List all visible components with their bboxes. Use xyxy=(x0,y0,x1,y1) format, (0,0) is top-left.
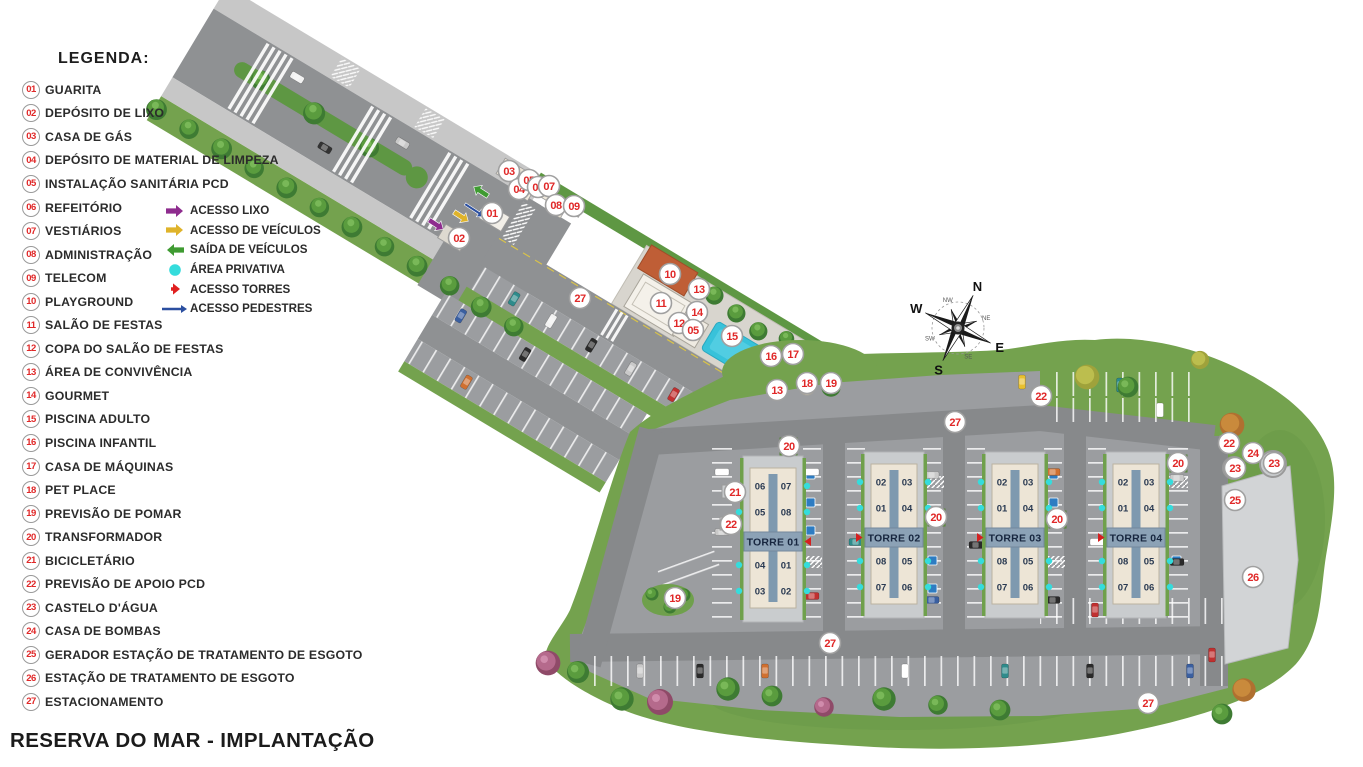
legend-item-16: 16 PISCINA INFANTIL xyxy=(22,431,382,455)
map-marker-19: 19 xyxy=(821,373,842,394)
tower-torre-02: TORRE 020203010408050706 xyxy=(856,452,931,618)
legend-item-18: 18 PET PLACE xyxy=(22,478,382,502)
unit-label: 05 xyxy=(902,556,913,567)
map-marker-number: 05 xyxy=(687,325,699,337)
private-area-dot xyxy=(925,479,931,485)
map-marker-number: 19 xyxy=(825,378,837,390)
map-marker-number: 22 xyxy=(1035,391,1047,403)
legend-item-label: GUARITA xyxy=(45,83,102,97)
legend-item-number: 25 xyxy=(22,646,40,664)
map-marker-number: 09 xyxy=(568,201,580,213)
legend-item-label: PREVISÃO DE APOIO PCD xyxy=(45,577,205,591)
legend-item-number: 22 xyxy=(22,575,40,593)
unit-label: 06 xyxy=(1023,582,1034,593)
acesso-torres-icon xyxy=(160,282,190,296)
private-area-dot xyxy=(857,479,863,485)
tower-torre-04: TORRE 040203010408050706 xyxy=(1098,452,1173,618)
map-marker-23: 23 xyxy=(1264,453,1285,474)
private-area-dot xyxy=(978,505,984,511)
legend-item-number: 12 xyxy=(22,340,40,358)
map-marker-number: 03 xyxy=(503,166,515,178)
legend-item-number: 02 xyxy=(22,104,40,122)
map-marker-number: 23 xyxy=(1268,458,1280,470)
map-marker-27: 27 xyxy=(570,288,591,309)
tower-name-label: TORRE 03 xyxy=(989,532,1042,544)
private-area-dot xyxy=(736,562,742,568)
map-marker-number: 21 xyxy=(729,487,741,499)
legend-item-number: 18 xyxy=(22,481,40,499)
legend-item-label: INSTALAÇÃO SANITÁRIA PCD xyxy=(45,177,229,191)
map-marker-number: 25 xyxy=(1229,495,1241,507)
map-marker-number: 13 xyxy=(771,385,783,397)
private-area-dot xyxy=(1099,558,1105,564)
unit-label: 01 xyxy=(1118,503,1129,514)
legend-item-20: 20 TRANSFORMADOR xyxy=(22,525,382,549)
legend-item-number: 08 xyxy=(22,246,40,264)
map-marker-07: 07 xyxy=(539,176,560,197)
legend-item-number: 13 xyxy=(22,363,40,381)
legend-item-17: 17 CASA DE MÁQUINAS xyxy=(22,455,382,479)
legend-item-22: 22 PREVISÃO DE APOIO PCD xyxy=(22,572,382,596)
private-area-dot xyxy=(978,479,984,485)
map-marker-number: 02 xyxy=(453,233,465,245)
legend-item-13: 13 ÁREA DE CONVIVÊNCIA xyxy=(22,361,382,385)
legend-item-label: DEPÓSITO DE MATERIAL DE LIMPEZA xyxy=(45,153,279,167)
private-area-dot xyxy=(1167,558,1173,564)
legend-item-number: 19 xyxy=(22,505,40,523)
legend-item-label: PISCINA ADULTO xyxy=(45,412,150,426)
map-marker-number: 22 xyxy=(725,519,737,531)
access-item-label: ACESSO LIXO xyxy=(190,204,269,217)
legend-item-label: PREVISÃO DE POMAR xyxy=(45,507,182,521)
private-area-dot xyxy=(804,588,810,594)
unit-label: 02 xyxy=(1118,477,1129,488)
legend-item-number: 11 xyxy=(22,316,40,334)
map-marker-22: 22 xyxy=(1031,386,1052,407)
unit-label: 04 xyxy=(1023,503,1034,514)
unit-label: 03 xyxy=(902,477,913,488)
private-area-dot xyxy=(1167,505,1173,511)
legend-item-number: 06 xyxy=(22,199,40,217)
unit-label: 01 xyxy=(781,560,792,571)
map-marker-number: 15 xyxy=(726,331,738,343)
map-marker-15: 15 xyxy=(722,326,743,347)
legend-item-01: 01 GUARITA xyxy=(22,78,382,102)
map-marker-number: 01 xyxy=(486,208,498,220)
legend-item-23: 23 CASTELO D'ÁGUA xyxy=(22,596,382,620)
compass-label-NW: NW xyxy=(943,298,953,304)
legend-item-12: 12 COPA DO SALÃO DE FESTAS xyxy=(22,337,382,361)
unit-label: 08 xyxy=(1118,556,1129,567)
area-privativa-icon xyxy=(160,263,190,277)
unit-label: 05 xyxy=(1144,556,1155,567)
map-marker-20: 20 xyxy=(926,507,947,528)
map-marker-27: 27 xyxy=(945,412,966,433)
unit-label: 05 xyxy=(1023,556,1034,567)
private-area-dot xyxy=(857,558,863,564)
tower-name-label: TORRE 01 xyxy=(747,536,800,548)
saida-veiculos-icon xyxy=(160,243,190,257)
access-item-acesso-lixo: ACESSO LIXO xyxy=(160,201,321,221)
access-item-label: ACESSO DE VEÍCULOS xyxy=(190,224,321,237)
map-marker-number: 11 xyxy=(656,298,667,310)
compass-label-SW: SW xyxy=(925,336,935,342)
legend-item-number: 09 xyxy=(22,269,40,287)
legend-item-number: 20 xyxy=(22,528,40,546)
private-area-dot xyxy=(1099,479,1105,485)
map-marker-number: 07 xyxy=(543,181,555,193)
compass-label-E: E xyxy=(995,340,1004,355)
unit-label: 04 xyxy=(1144,503,1155,514)
map-marker-number: 20 xyxy=(1051,514,1063,526)
legend-item-21: 21 BICICLETÁRIO xyxy=(22,549,382,573)
legend-item-label: BICICLETÁRIO xyxy=(45,554,135,568)
unit-label: 05 xyxy=(755,507,766,518)
private-area-dot xyxy=(925,558,931,564)
legend-item-14: 14 GOURMET xyxy=(22,384,382,408)
map-marker-19: 19 xyxy=(665,588,686,609)
legend-item-label: CASA DE GÁS xyxy=(45,130,132,144)
private-area-dot xyxy=(736,588,742,594)
legend-item-05: 05 INSTALAÇÃO SANITÁRIA PCD xyxy=(22,172,382,196)
map-marker-20: 20 xyxy=(1168,453,1189,474)
legend-item-number: 05 xyxy=(22,175,40,193)
legend-item-label: PLAYGROUND xyxy=(45,295,133,309)
unit-label: 04 xyxy=(755,560,766,571)
compass-label-NE: NE xyxy=(982,316,990,322)
map-marker-number: 17 xyxy=(787,349,799,361)
map-marker-20: 20 xyxy=(779,436,800,457)
unit-label: 08 xyxy=(781,507,792,518)
map-marker-17: 17 xyxy=(783,344,804,365)
map-marker-number: 16 xyxy=(765,351,777,363)
private-area-dot xyxy=(1099,505,1105,511)
tower-torre-01: TORRE 010607050804010302 xyxy=(736,456,811,622)
private-area-dot xyxy=(978,558,984,564)
legend-item-26: 26 ESTAÇÃO DE TRATAMENTO DE ESGOTO xyxy=(22,667,382,691)
legend-item-number: 03 xyxy=(22,128,40,146)
private-area-dot xyxy=(804,509,810,515)
unit-label: 03 xyxy=(1023,477,1034,488)
access-item-acesso-torres: ACESSO TORRES xyxy=(160,279,321,299)
map-marker-number: 22 xyxy=(1223,438,1235,450)
legend-item-label: ESTAÇÃO DE TRATAMENTO DE ESGOTO xyxy=(45,671,295,685)
map-marker-09: 09 xyxy=(564,196,585,217)
unit-label: 03 xyxy=(755,586,766,597)
map-marker-27: 27 xyxy=(1138,693,1159,714)
tower-torre-03: TORRE 030203010408050706 xyxy=(977,452,1052,618)
legend-item-number: 15 xyxy=(22,410,40,428)
tower-name-label: TORRE 02 xyxy=(868,532,921,544)
legend-item-number: 04 xyxy=(22,151,40,169)
legend-item-02: 02 DEPÓSITO DE LIXO xyxy=(22,102,382,126)
access-item-acesso-pedestres: ACESSO PEDESTRES xyxy=(160,299,321,319)
legend-item-number: 01 xyxy=(22,81,40,99)
private-area-dot xyxy=(1046,479,1052,485)
legend-item-label: REFEITÓRIO xyxy=(45,201,122,215)
private-area-dot xyxy=(1099,584,1105,590)
access-item-label: ÁREA PRIVATIVA xyxy=(190,263,285,276)
access-item-label: ACESSO TORRES xyxy=(190,283,290,296)
acesso-lixo-icon xyxy=(160,204,190,218)
legend-item-number: 21 xyxy=(22,552,40,570)
legend-item-27: 27 ESTACIONAMENTO xyxy=(22,690,382,714)
acesso-pedestres-icon xyxy=(160,302,190,316)
unit-label: 07 xyxy=(997,582,1008,593)
map-marker-21: 21 xyxy=(725,482,746,503)
map-marker-05: 05 xyxy=(683,320,704,341)
unit-label: 06 xyxy=(902,582,913,593)
access-item-area-privativa: ÁREA PRIVATIVA xyxy=(160,260,321,280)
legend-item-number: 17 xyxy=(22,458,40,476)
map-marker-number: 23 xyxy=(1229,463,1241,475)
map-marker-number: 20 xyxy=(783,441,795,453)
compass-label-W: W xyxy=(910,301,923,316)
unit-label: 06 xyxy=(755,481,766,492)
map-marker-number: 27 xyxy=(574,293,586,305)
map-marker-number: 18 xyxy=(801,378,813,390)
unit-label: 04 xyxy=(902,503,913,514)
legend-item-label: CASTELO D'ÁGUA xyxy=(45,601,158,615)
private-area-dot xyxy=(925,584,931,590)
map-marker-24: 24 xyxy=(1243,443,1264,464)
legend-item-label: COPA DO SALÃO DE FESTAS xyxy=(45,342,224,356)
map-marker-13: 13 xyxy=(689,279,710,300)
private-area-dot xyxy=(1167,584,1173,590)
site-plan-page: TORRE 010607050804010302TORRE 0202030104… xyxy=(0,0,1363,767)
unit-label: 01 xyxy=(997,503,1008,514)
legend-panel: LEGENDA: 01 GUARITA 02 DEPÓSITO DE LIXO … xyxy=(22,50,382,714)
legend-item-25: 25 GERADOR ESTAÇÃO DE TRATAMENTO DE ESGO… xyxy=(22,643,382,667)
legend-item-label: GERADOR ESTAÇÃO DE TRATAMENTO DE ESGOTO xyxy=(45,648,363,662)
map-marker-22: 22 xyxy=(1219,433,1240,454)
private-area-dot xyxy=(804,483,810,489)
legend-item-number: 07 xyxy=(22,222,40,240)
compass-label-N: N xyxy=(973,279,982,294)
unit-label: 06 xyxy=(1144,582,1155,593)
legend-list: 01 GUARITA 02 DEPÓSITO DE LIXO 03 CASA D… xyxy=(22,78,382,714)
private-area-dot xyxy=(857,584,863,590)
map-marker-01: 01 xyxy=(482,203,503,224)
legend-item-number: 26 xyxy=(22,669,40,687)
legend-item-label: ADMINISTRAÇÃO xyxy=(45,248,152,262)
map-marker-25: 25 xyxy=(1225,490,1246,511)
legend-item-label: CASA DE MÁQUINAS xyxy=(45,460,173,474)
map-marker-13: 13 xyxy=(767,380,788,401)
map-marker-number: 26 xyxy=(1247,572,1259,584)
legend-item-label: TRANSFORMADOR xyxy=(45,530,162,544)
map-marker-number: 27 xyxy=(949,417,961,429)
acesso-veiculos-icon xyxy=(160,223,190,237)
map-marker-number: 20 xyxy=(1172,458,1184,470)
map-marker-number: 19 xyxy=(669,593,681,605)
map-marker-number: 08 xyxy=(550,200,562,212)
private-area-dot xyxy=(857,505,863,511)
legend-item-number: 24 xyxy=(22,622,40,640)
access-item-label: SAÍDA DE VEÍCULOS xyxy=(190,243,307,256)
map-marker-number: 10 xyxy=(664,269,676,281)
map-marker-22: 22 xyxy=(721,514,742,535)
legend-item-label: SALÃO DE FESTAS xyxy=(45,318,163,332)
map-marker-number: 27 xyxy=(1142,698,1154,710)
map-marker-27: 27 xyxy=(820,633,841,654)
private-area-dot xyxy=(1167,479,1173,485)
access-legend: ACESSO LIXOACESSO DE VEÍCULOSSAÍDA DE VE… xyxy=(160,201,321,319)
legend-item-03: 03 CASA DE GÁS xyxy=(22,125,382,149)
legend-item-label: GOURMET xyxy=(45,389,109,403)
unit-label: 02 xyxy=(997,477,1008,488)
legend-heading: LEGENDA: xyxy=(58,50,382,68)
compass-label-SE: SE xyxy=(964,354,972,360)
map-marker-18: 18 xyxy=(797,373,818,394)
unit-label: 07 xyxy=(1118,582,1129,593)
legend-item-15: 15 PISCINA ADULTO xyxy=(22,408,382,432)
legend-item-04: 04 DEPÓSITO DE MATERIAL DE LIMPEZA xyxy=(22,149,382,173)
map-marker-number: 13 xyxy=(693,284,705,296)
map-marker-23: 23 xyxy=(1225,458,1246,479)
unit-label: 02 xyxy=(876,477,887,488)
unit-label: 08 xyxy=(997,556,1008,567)
private-area-dot xyxy=(1046,558,1052,564)
legend-item-label: PET PLACE xyxy=(45,483,116,497)
unit-label: 07 xyxy=(876,582,887,593)
access-item-acesso-veiculos: ACESSO DE VEÍCULOS xyxy=(160,221,321,241)
legend-item-number: 23 xyxy=(22,599,40,617)
legend-item-label: DEPÓSITO DE LIXO xyxy=(45,106,164,120)
legend-item-number: 16 xyxy=(22,434,40,452)
access-item-label: ACESSO PEDESTRES xyxy=(190,302,312,315)
map-marker-number: 14 xyxy=(691,307,704,319)
map-marker-26: 26 xyxy=(1243,567,1264,588)
private-area-dot xyxy=(1046,584,1052,590)
unit-label: 03 xyxy=(1144,477,1155,488)
page-title: RESERVA DO MAR - IMPLANTAÇÃO xyxy=(10,729,375,753)
compass-label-S: S xyxy=(934,362,943,377)
map-marker-number: 27 xyxy=(824,638,836,650)
legend-item-label: VESTIÁRIOS xyxy=(45,224,121,238)
legend-item-number: 27 xyxy=(22,693,40,711)
access-item-saida-veiculos: SAÍDA DE VEÍCULOS xyxy=(160,240,321,260)
map-marker-02: 02 xyxy=(449,228,470,249)
legend-item-24: 24 CASA DE BOMBAS xyxy=(22,620,382,644)
legend-item-label: TELECOM xyxy=(45,271,107,285)
legend-item-number: 14 xyxy=(22,387,40,405)
legend-item-label: CASA DE BOMBAS xyxy=(45,624,161,638)
unit-label: 02 xyxy=(781,586,792,597)
map-marker-16: 16 xyxy=(761,346,782,367)
map-marker-10: 10 xyxy=(660,264,681,285)
private-area-dot xyxy=(804,562,810,568)
legend-item-19: 19 PREVISÃO DE POMAR xyxy=(22,502,382,526)
private-area-dot xyxy=(978,584,984,590)
unit-label: 08 xyxy=(876,556,887,567)
map-marker-number: 24 xyxy=(1247,448,1260,460)
map-marker-20: 20 xyxy=(1047,509,1068,530)
map-marker-number: 20 xyxy=(930,512,942,524)
map-marker-11: 11 xyxy=(651,293,672,314)
unit-label: 01 xyxy=(876,503,887,514)
legend-item-label: PISCINA INFANTIL xyxy=(45,436,156,450)
legend-item-number: 10 xyxy=(22,293,40,311)
private-area-dot xyxy=(736,509,742,515)
tower-name-label: TORRE 04 xyxy=(1110,532,1163,544)
legend-item-label: ÁREA DE CONVIVÊNCIA xyxy=(45,365,193,379)
unit-label: 07 xyxy=(781,481,792,492)
legend-item-label: ESTACIONAMENTO xyxy=(45,695,164,709)
